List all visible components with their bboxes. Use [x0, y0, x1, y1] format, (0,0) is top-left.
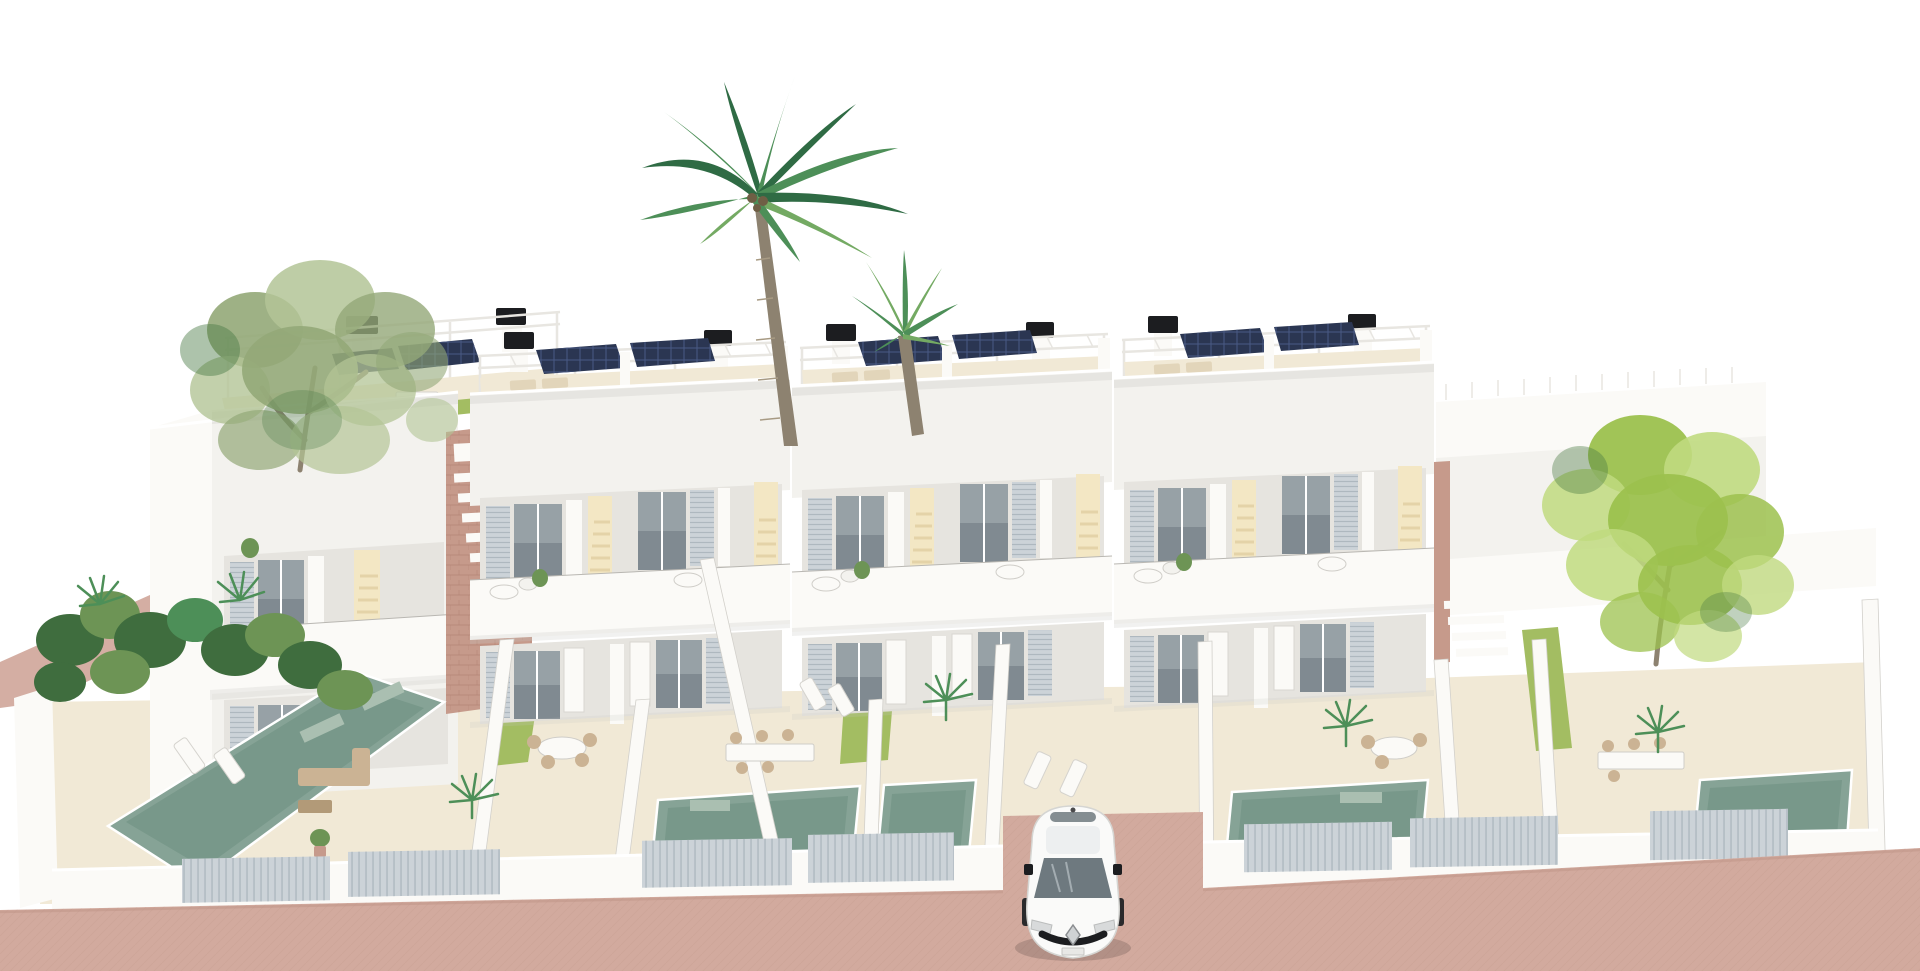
plant-pot: [314, 846, 326, 857]
coconut: [747, 193, 757, 203]
dining-chair: [730, 732, 742, 744]
screenshot: [0, 0, 1920, 971]
dining-chair: [736, 762, 748, 774]
car-license-plate: [1062, 948, 1084, 955]
dining-chair: [762, 761, 774, 773]
car-mirror: [1113, 864, 1122, 875]
gate-slats: [1244, 822, 1392, 873]
dining-chair: [527, 735, 541, 749]
villa-3: [792, 322, 1112, 720]
left-boundary-wall: [14, 686, 58, 908]
car-mirror: [1024, 864, 1033, 875]
dining-table: [1598, 752, 1684, 769]
coconut: [753, 204, 761, 212]
dining-chair: [1375, 755, 1389, 769]
dining-chair: [541, 755, 555, 769]
dining-chair: [1628, 738, 1640, 750]
dining-chair: [756, 730, 768, 742]
gate-slats: [182, 856, 330, 903]
dining-chair: [583, 733, 597, 747]
gate-slats: [642, 838, 792, 888]
dining-chair: [1413, 733, 1427, 747]
potted-plant: [310, 829, 330, 847]
car-antenna: [1071, 808, 1076, 813]
car-rear-window: [1050, 812, 1096, 822]
gate-slats: [1410, 816, 1558, 868]
dining-chair: [1602, 740, 1614, 752]
outdoor-sofa: [352, 748, 370, 786]
car-windshield: [1034, 858, 1112, 898]
coconut: [758, 196, 768, 206]
gate-slats: [1650, 809, 1788, 860]
dining-chair: [782, 729, 794, 741]
gate-slats: [808, 832, 954, 883]
round-dining-table: [1371, 737, 1417, 759]
brick-pier: [1434, 461, 1450, 664]
dining-chair: [1361, 735, 1375, 749]
architectural-render: [0, 0, 1920, 971]
pool-step: [1340, 792, 1382, 803]
gate-slats: [348, 849, 500, 897]
dining-chair: [575, 753, 589, 767]
villa-4: [1114, 314, 1434, 712]
dining-chair: [1654, 737, 1666, 749]
dining-chair: [1608, 770, 1620, 782]
dining-table: [726, 744, 814, 761]
pool-step: [690, 800, 730, 811]
balcony-plant: [241, 538, 259, 558]
coffee-table: [298, 800, 332, 813]
car-roof: [1046, 826, 1100, 854]
villa-2: [470, 330, 790, 728]
